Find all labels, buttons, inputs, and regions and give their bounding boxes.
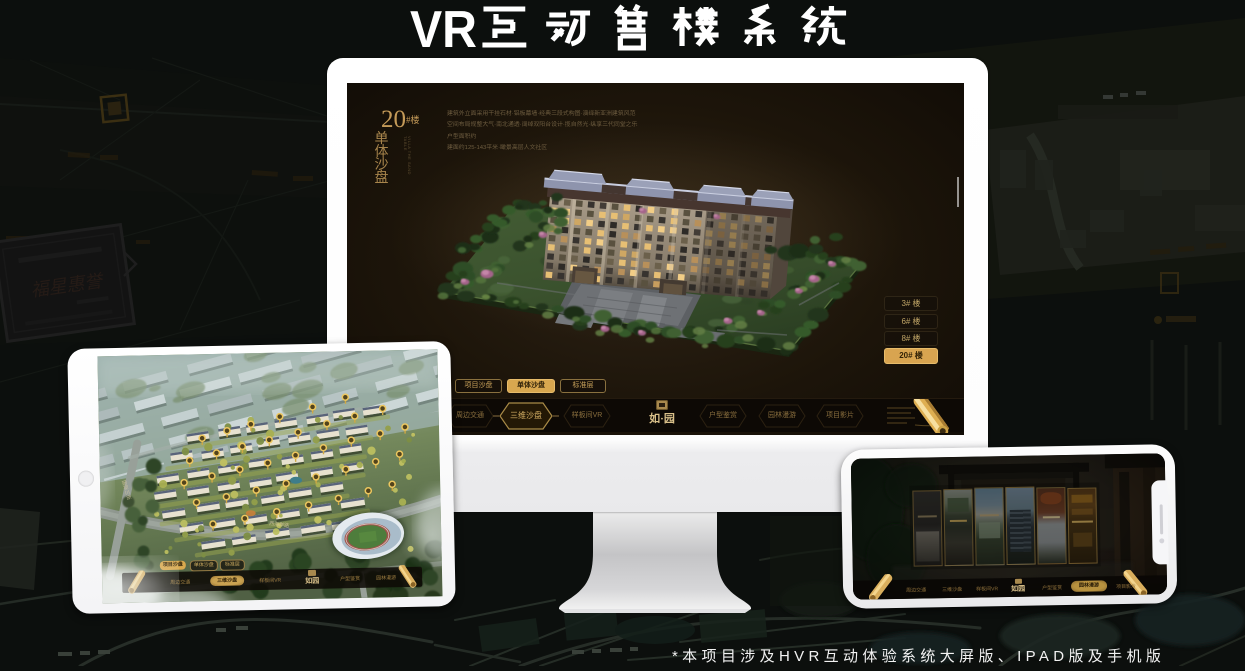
svg-text:VR: VR [410,1,477,58]
